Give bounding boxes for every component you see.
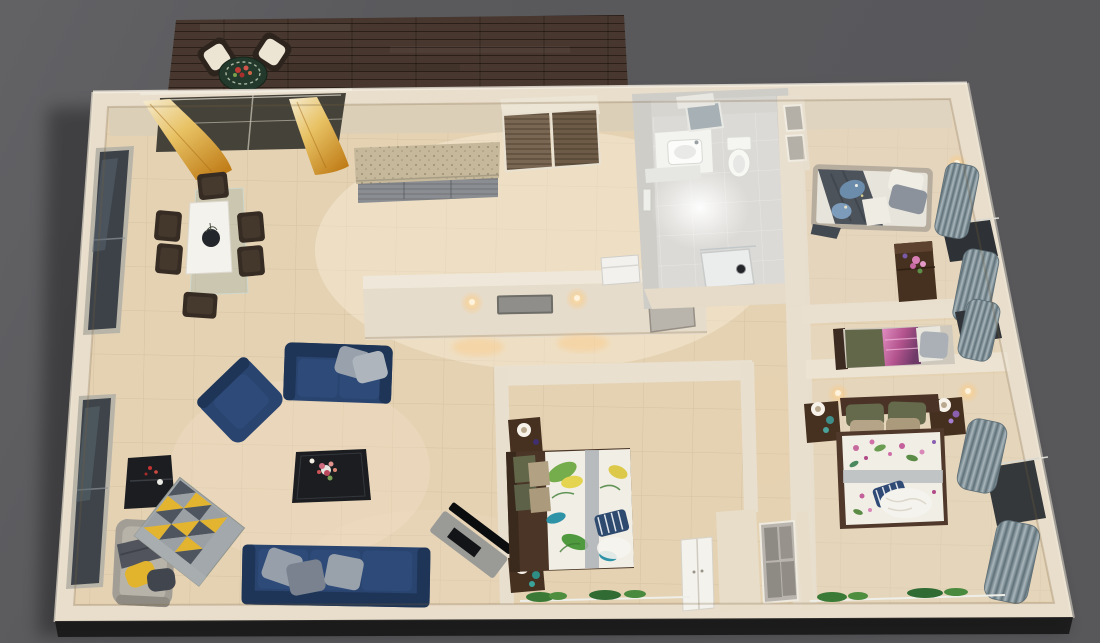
dining-chair [197,171,230,200]
toilet [727,137,751,177]
centerpiece-bowl [202,229,220,247]
charcoal-pillow [146,567,176,592]
gray-pillow [919,331,949,359]
dining-chair [237,211,266,243]
tan-pillow [529,487,551,513]
towel-rail [643,189,651,211]
magenta-throw [882,327,921,366]
picture-frame [498,296,552,314]
gray-pillow [285,558,326,596]
dining-chair [182,292,218,319]
dining-chair [155,243,184,275]
dresser [894,241,937,302]
single-bed-pink [833,325,955,370]
shower-drain [737,265,746,274]
navy-loveseat [283,342,393,404]
balcony-deck [168,15,628,92]
nightstand [804,401,841,443]
basin [667,139,702,165]
tan-pillow [528,461,550,487]
wall-sconce [565,287,589,311]
bathroom [632,88,801,309]
floorplan-render [0,0,1100,643]
dining-chair [154,210,183,242]
dining-chair [237,245,266,277]
balcony-table [219,57,267,91]
kitchen-counter [354,142,500,203]
paneled-closet-front [760,521,798,603]
shower-tray [700,246,756,288]
candle [310,459,315,464]
olive-blanket [845,329,886,368]
sheet-fold [597,537,631,559]
double-bed-tropical [506,448,634,572]
gray-blanket-band [843,470,943,483]
gray-pillow [323,553,364,591]
built-in-wardrobe [500,95,600,171]
coffee-table [292,449,371,503]
navy-sofa [241,544,430,607]
fridge [601,255,640,285]
wall-sconce [460,291,484,315]
